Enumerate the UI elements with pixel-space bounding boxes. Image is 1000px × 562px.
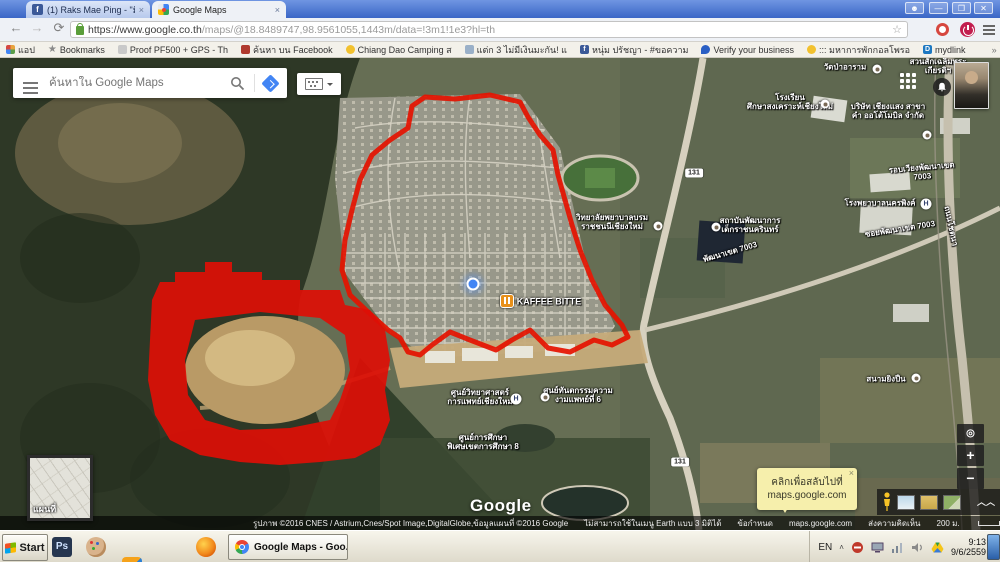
maps-favicon <box>158 4 169 15</box>
bookmark-item[interactable]: Verify your business <box>701 45 794 55</box>
facebook-favicon: f <box>32 4 43 15</box>
smiley-icon <box>346 45 355 54</box>
search-input[interactable] <box>47 76 221 90</box>
page-icon <box>118 45 127 54</box>
minimize-button[interactable]: — <box>929 2 948 14</box>
volume-icon[interactable] <box>911 541 924 554</box>
network-signal-icon[interactable] <box>891 541 904 554</box>
tab-title: (1) Raks Mae Ping - "มีใคร <box>47 3 135 17</box>
google-logo: Google <box>470 496 532 516</box>
tray-expand-icon[interactable]: ˄ <box>839 543 844 552</box>
bookmark-item[interactable]: Proof PF500 + GPS - Th <box>118 45 228 55</box>
start-button[interactable]: Start <box>2 534 48 561</box>
bookmarks-bar: แอป ★Bookmarks Proof PF500 + GPS - Th ค้… <box>0 42 1000 58</box>
chrome-menu-icon[interactable] <box>983 25 995 27</box>
layer-thumb-terrain[interactable] <box>897 495 915 510</box>
earth-note: ไม่สามารถใช้ในเมนู Earth แบบ 3 มิติได้ <box>584 517 721 530</box>
extension-icon-power[interactable] <box>960 22 975 37</box>
show-desktop-button[interactable] <box>987 534 1000 560</box>
page-icon <box>465 45 474 54</box>
browser-toolbar: ← → ⟳ https://www.google.co.th/maps/@18.… <box>0 18 1000 42</box>
language-indicator[interactable]: EN <box>818 542 832 553</box>
bookmark-star-icon[interactable]: ☆ <box>892 23 902 36</box>
media-player-icon[interactable] <box>122 557 142 562</box>
bookmark-item[interactable]: Dmydlink <box>923 45 966 55</box>
hospital-marker[interactable]: H <box>921 199 932 210</box>
zoom-out-button[interactable]: − <box>957 468 984 489</box>
browser-titlebar[interactable]: f (1) Raks Mae Ping - "มีใคร × Google Ma… <box>0 0 1000 18</box>
bookmark-item[interactable]: แต่ก 3 ไม่มีเงินมะกัน! แ <box>465 43 567 57</box>
windows-flag-icon <box>5 542 16 554</box>
scale-text: 200 ม. <box>937 517 960 530</box>
star-icon: ★ <box>48 44 57 55</box>
bookmark-apps[interactable]: แอป <box>6 43 35 57</box>
photoshop-icon[interactable]: Ps <box>52 537 72 557</box>
layer-thumb-map[interactable] <box>943 495 961 510</box>
route-shield-131: 131 <box>671 458 689 467</box>
maps-search-box[interactable] <box>13 68 287 98</box>
security-tray-icon[interactable] <box>851 541 864 554</box>
close-button[interactable]: ✕ <box>974 2 993 14</box>
tray-clock[interactable]: 9:13 9/6/2559 <box>951 537 986 557</box>
poi-marker[interactable] <box>712 223 721 232</box>
terms-link[interactable]: ข้อกำหนด <box>737 517 773 530</box>
bookmarks-overflow-chevron[interactable]: » <box>992 45 997 55</box>
extension-icon-ring[interactable] <box>936 23 949 36</box>
reload-button[interactable]: ⟳ <box>49 20 69 36</box>
divider <box>254 74 255 92</box>
notifications-icon[interactable] <box>933 78 951 96</box>
directions-icon[interactable] <box>261 74 279 92</box>
imagery-credit: รูปภาพ ©2016 CNES / Astrium,Cnes/Spot Im… <box>253 517 568 530</box>
minimap-label: แผนที่ <box>33 502 56 516</box>
hospital-marker[interactable]: H <box>511 394 522 405</box>
zoom-in-button[interactable]: + <box>957 445 984 466</box>
bookmark-item[interactable]: ::: มหาการพักกอลโพรอ <box>807 43 910 57</box>
map-mode-toggle[interactable]: แผนที่ <box>27 455 93 521</box>
my-location-button[interactable]: ◎ <box>957 424 984 443</box>
restaurant-icon[interactable] <box>500 294 514 308</box>
tab-google-maps[interactable]: Google Maps × <box>152 1 286 18</box>
tab-facebook[interactable]: f (1) Raks Mae Ping - "มีใคร × <box>26 1 150 18</box>
facebook-icon: f <box>580 45 589 54</box>
streetview-layers-bar: ︿︿ <box>877 489 1000 515</box>
windows-taskbar: Start Ps Google Maps - Goo... EN ˄ 9:13 … <box>0 530 1000 562</box>
url-secure: https://www.google.co.th <box>88 24 202 36</box>
tab-close-icon[interactable]: × <box>275 5 280 15</box>
url-path: /maps/@18.8489747,98.9561055,1443m/data=… <box>202 24 495 36</box>
active-task-button[interactable]: Google Maps - Goo... <box>228 534 348 560</box>
input-method-selector[interactable] <box>297 73 341 95</box>
map-controls: ◎ + − <box>957 424 984 491</box>
forward-button[interactable]: → <box>27 20 47 35</box>
tooltip-close-icon[interactable]: × <box>849 469 854 478</box>
bookmark-item[interactable]: Chiang Dao Camping ส <box>346 43 452 57</box>
maps-link[interactable]: maps.google.com <box>789 519 852 528</box>
desktop-screen: f (1) Raks Mae Ping - "มีใคร × Google Ma… <box>0 0 1000 562</box>
feedback-link[interactable]: ส่งความคิดเห็น <box>868 517 920 530</box>
smiley-icon <box>807 45 816 54</box>
restore-button[interactable]: ❐ <box>952 2 971 14</box>
poi-marker[interactable] <box>821 100 830 109</box>
profile-button[interactable]: ☻ <box>905 2 924 14</box>
firefox-icon[interactable] <box>196 537 216 557</box>
bookmark-item[interactable]: ค้นหา บน Facebook <box>241 43 333 57</box>
tab-close-icon[interactable]: × <box>139 5 144 15</box>
layer-thumb-satellite[interactable] <box>920 495 938 510</box>
map-viewport[interactable]: วัดป่าอาราม สวนสักเฉลิมพระเกียรติฯ โรงเร… <box>0 58 1000 530</box>
bookmark-item[interactable]: fหนุ่ม ปรัชญา - #ขอความ <box>580 43 689 57</box>
tab-title: Google Maps <box>173 5 271 15</box>
collapse-chevrons-icon[interactable]: ︿︿ <box>977 499 995 506</box>
poi-marker[interactable] <box>873 65 882 74</box>
system-tray: EN ˄ 9:13 9/6/2559 <box>809 531 986 562</box>
google-drive-icon[interactable] <box>931 541 944 554</box>
map-pin-icon <box>701 45 710 54</box>
poi-marker[interactable] <box>654 222 663 231</box>
pegman-icon[interactable] <box>882 492 892 512</box>
switch-tooltip[interactable]: × คลิกเพื่อสลับไปที่ maps.google.com <box>757 468 857 510</box>
account-avatar[interactable] <box>954 62 989 109</box>
back-button[interactable]: ← <box>6 20 26 35</box>
keyboard-icon <box>305 78 323 90</box>
apps-grid-icon <box>6 45 15 54</box>
search-icon[interactable] <box>230 76 245 91</box>
display-tray-icon[interactable] <box>871 541 884 554</box>
https-lock-icon <box>76 26 84 35</box>
poi-marker[interactable] <box>912 374 921 383</box>
mydlink-icon: D <box>923 45 932 54</box>
poi-marker[interactable] <box>541 393 550 402</box>
menu-icon[interactable] <box>23 82 38 84</box>
scale-bar <box>978 521 1000 526</box>
google-apps-grid-icon[interactable] <box>900 73 904 77</box>
chevron-down-icon <box>327 83 333 89</box>
page-icon <box>241 45 250 54</box>
paint-icon[interactable] <box>86 537 106 557</box>
bookmark-folder-bookmarks[interactable]: ★Bookmarks <box>48 44 105 55</box>
selected-place-dot[interactable] <box>467 278 480 291</box>
attribution-bar: รูปภาพ ©2016 CNES / Astrium,Cnes/Spot Im… <box>0 516 1000 530</box>
poi-marker[interactable] <box>923 131 932 140</box>
route-shield-131: 131 <box>685 169 703 178</box>
address-bar[interactable]: https://www.google.co.th/maps/@18.848974… <box>70 21 908 38</box>
chrome-icon <box>235 540 249 554</box>
